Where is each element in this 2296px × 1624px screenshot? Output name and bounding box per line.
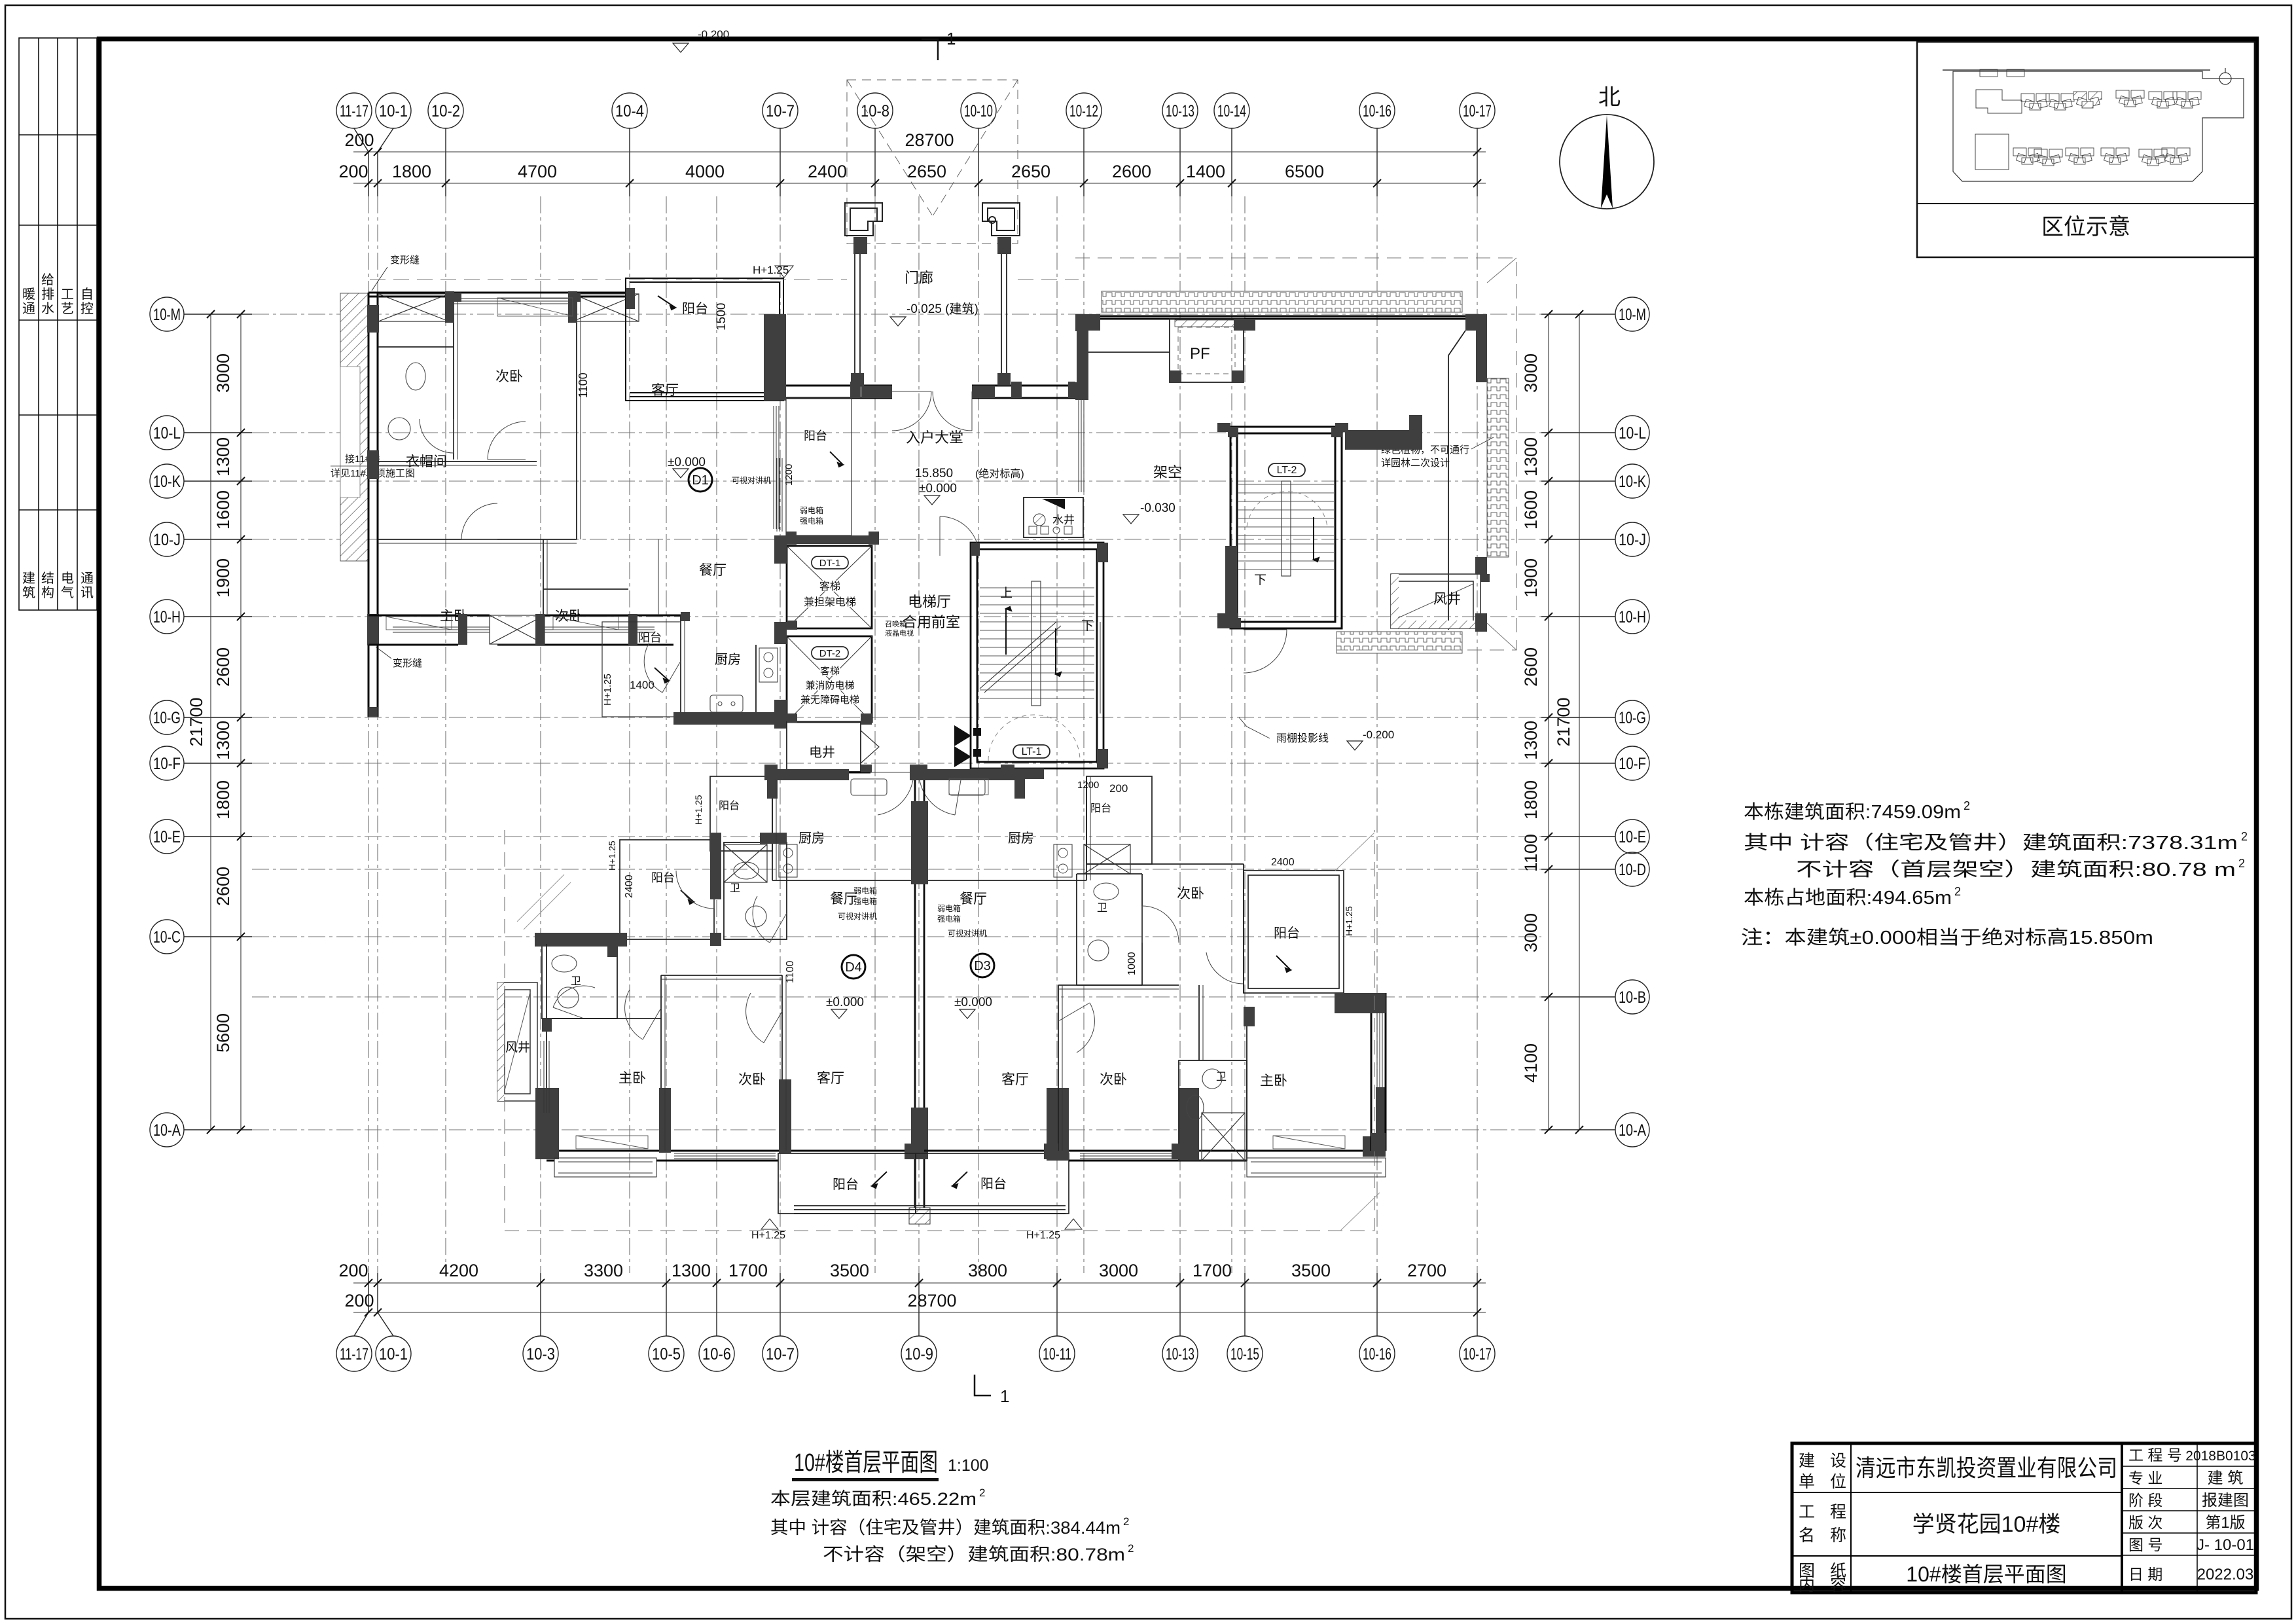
svg-text:自: 自 — [81, 287, 94, 302]
svg-text:衣帽间: 衣帽间 — [406, 454, 447, 469]
svg-text:餐厅: 餐厅 — [699, 563, 726, 578]
svg-text:1700: 1700 — [728, 1261, 768, 1280]
svg-text:1:100: 1:100 — [948, 1456, 989, 1475]
svg-text:2600: 2600 — [1521, 647, 1541, 687]
svg-text:兼无障碍电梯: 兼无障碍电梯 — [800, 694, 859, 706]
svg-text:10#楼首层平面图: 10#楼首层平面图 — [1906, 1562, 2066, 1586]
svg-text:2: 2 — [2238, 857, 2245, 870]
svg-text:10-2: 10-2 — [431, 102, 460, 120]
svg-text:1100: 1100 — [785, 960, 796, 983]
svg-text:3000: 3000 — [213, 353, 233, 393]
svg-text:餐厅: 餐厅 — [830, 892, 857, 907]
svg-text:雨棚投影线: 雨棚投影线 — [1276, 732, 1329, 744]
svg-text:1100: 1100 — [577, 372, 590, 398]
svg-text:DT-2: DT-2 — [819, 648, 841, 659]
svg-text:厨房: 厨房 — [798, 831, 825, 846]
svg-text:D1: D1 — [692, 473, 709, 488]
svg-text:1300: 1300 — [213, 721, 233, 760]
svg-text:北: 北 — [1598, 85, 1621, 110]
svg-text:可视对讲机: 可视对讲机 — [948, 928, 987, 938]
svg-text:H+1.25: H+1.25 — [751, 1230, 785, 1241]
svg-text:10-5: 10-5 — [652, 1345, 681, 1363]
svg-text:10-H: 10-H — [1619, 608, 1646, 626]
svg-text:10-6: 10-6 — [702, 1345, 731, 1363]
svg-text:阶 段: 阶 段 — [2128, 1492, 2162, 1509]
svg-text:H+1.25: H+1.25 — [1344, 906, 1354, 936]
svg-text:注：本建筑±0.000相当于绝对标高15.850m: 注：本建筑±0.000相当于绝对标高15.850m — [1741, 927, 2153, 948]
svg-text:程: 程 — [1830, 1503, 1846, 1521]
svg-text:合用前室: 合用前室 — [903, 614, 960, 630]
svg-text:2400: 2400 — [624, 875, 635, 898]
svg-text:次卧: 次卧 — [738, 1072, 766, 1087]
svg-text:兼消防电梯: 兼消防电梯 — [805, 680, 854, 691]
svg-text:主卧: 主卧 — [619, 1071, 646, 1086]
svg-text:(绝对标高): (绝对标高) — [975, 468, 1024, 480]
svg-text:弱电箱: 弱电箱 — [937, 903, 961, 913]
svg-text:H+1.25: H+1.25 — [1026, 1230, 1060, 1241]
svg-text:兼担架电梯: 兼担架电梯 — [804, 596, 856, 608]
svg-text:厨房: 厨房 — [1008, 831, 1034, 846]
svg-text:10-J: 10-J — [1619, 531, 1646, 549]
svg-text:10-12: 10-12 — [1069, 102, 1098, 120]
svg-text:1200: 1200 — [1077, 780, 1099, 791]
svg-text:3300: 3300 — [584, 1261, 623, 1280]
svg-text:2022.03: 2022.03 — [2197, 1566, 2254, 1583]
svg-text:其中 计容（住宅及管井）建筑面积:7378.31m: 其中 计容（住宅及管井）建筑面积:7378.31m — [1744, 832, 2238, 854]
svg-text:2400: 2400 — [1271, 857, 1295, 868]
svg-text:-0.200: -0.200 — [698, 28, 729, 41]
svg-text:阳台: 阳台 — [651, 871, 675, 884]
svg-text:阳台: 阳台 — [1090, 803, 1111, 814]
svg-text:阳台: 阳台 — [638, 631, 662, 644]
svg-text:10-K: 10-K — [153, 473, 181, 491]
svg-text:单: 单 — [1799, 1473, 1815, 1491]
svg-text:D4: D4 — [845, 960, 862, 975]
svg-text:厨房: 厨房 — [715, 652, 741, 667]
svg-text:10-15: 10-15 — [1230, 1345, 1259, 1363]
svg-text:3000: 3000 — [1099, 1261, 1138, 1280]
svg-text:2600: 2600 — [213, 647, 233, 687]
svg-text:阳台: 阳台 — [682, 301, 708, 316]
svg-text:10-14: 10-14 — [1217, 102, 1246, 120]
svg-text:1800: 1800 — [1521, 780, 1541, 820]
svg-text:工 程 号: 工 程 号 — [2128, 1447, 2182, 1464]
svg-text:±0.000: ±0.000 — [919, 482, 957, 496]
svg-text:次卧: 次卧 — [1100, 1072, 1127, 1087]
svg-text:10-F: 10-F — [1619, 755, 1646, 773]
svg-text:2: 2 — [1964, 799, 1970, 812]
svg-text:水: 水 — [41, 301, 54, 316]
svg-text:10-H: 10-H — [153, 608, 181, 626]
svg-text:1400: 1400 — [630, 679, 655, 691]
svg-text:门廊: 门廊 — [905, 270, 933, 286]
svg-text:1500: 1500 — [715, 303, 728, 331]
svg-text:1600: 1600 — [213, 490, 233, 530]
svg-text:LT-2: LT-2 — [1277, 465, 1297, 476]
svg-text:10-4: 10-4 — [615, 102, 644, 120]
svg-text:次卧: 次卧 — [495, 369, 523, 384]
svg-text:水井: 水井 — [1052, 514, 1075, 526]
svg-text:10-1: 10-1 — [379, 1345, 408, 1363]
svg-text:风井: 风井 — [1433, 592, 1461, 607]
svg-text:讯: 讯 — [81, 585, 94, 600]
svg-text:200: 200 — [344, 1291, 374, 1310]
svg-text:卫: 卫 — [1097, 903, 1107, 914]
svg-text:建 筑: 建 筑 — [2208, 1470, 2244, 1487]
svg-text:-0.025 (建筑): -0.025 (建筑) — [906, 302, 978, 316]
svg-text:1700: 1700 — [1193, 1261, 1232, 1280]
svg-text:4700: 4700 — [518, 162, 557, 181]
svg-text:3800: 3800 — [968, 1261, 1007, 1280]
svg-text:±0.000: ±0.000 — [668, 456, 706, 469]
svg-text:3500: 3500 — [1291, 1261, 1331, 1280]
svg-text:建: 建 — [22, 571, 35, 586]
svg-text:版 次: 版 次 — [2128, 1514, 2162, 1531]
svg-text:阳台: 阳台 — [833, 1177, 859, 1192]
svg-text:位: 位 — [1830, 1473, 1846, 1491]
svg-text:筑: 筑 — [22, 585, 35, 600]
svg-text:10-7: 10-7 — [766, 102, 795, 120]
svg-text:2600: 2600 — [1112, 162, 1151, 181]
svg-text:1300: 1300 — [213, 437, 233, 477]
svg-text:10-D: 10-D — [1619, 861, 1646, 879]
svg-text:1000: 1000 — [1126, 952, 1138, 975]
svg-text:建: 建 — [1799, 1452, 1815, 1470]
svg-text:10-E: 10-E — [1619, 828, 1646, 846]
svg-text:排: 排 — [41, 287, 54, 302]
svg-text:不计容（首层架空）建筑面积:80.78 m: 不计容（首层架空）建筑面积:80.78 m — [1796, 859, 2236, 880]
svg-text:气: 气 — [61, 585, 74, 600]
svg-text:200: 200 — [338, 162, 368, 181]
svg-text:3000: 3000 — [1521, 353, 1541, 393]
svg-text:给: 给 — [41, 272, 54, 287]
svg-text:卫: 卫 — [1216, 1072, 1227, 1083]
svg-text:10-L: 10-L — [1619, 424, 1646, 442]
svg-text:10-16: 10-16 — [1363, 102, 1391, 120]
svg-text:2: 2 — [979, 1487, 985, 1499]
svg-text:1600: 1600 — [1521, 490, 1541, 530]
svg-text:日 期: 日 期 — [2128, 1566, 2162, 1583]
svg-text:设: 设 — [1830, 1452, 1846, 1470]
svg-text:2: 2 — [1954, 885, 1961, 898]
svg-text:客梯: 客梯 — [820, 666, 840, 677]
svg-text:暖: 暖 — [22, 287, 35, 302]
svg-text:10-17: 10-17 — [1463, 102, 1492, 120]
svg-text:第1版: 第1版 — [2205, 1514, 2245, 1532]
svg-text:变形缝: 变形缝 — [393, 658, 422, 669]
svg-text:10-J: 10-J — [153, 531, 181, 549]
svg-text:H+1.25: H+1.25 — [693, 795, 704, 825]
svg-text:客厅: 客厅 — [651, 383, 679, 398]
svg-text:2: 2 — [1128, 1542, 1134, 1555]
svg-text:3500: 3500 — [830, 1261, 869, 1280]
svg-text:21700: 21700 — [1554, 697, 1573, 746]
svg-text:阳台: 阳台 — [804, 429, 827, 442]
svg-text:主卧: 主卧 — [1260, 1074, 1287, 1089]
svg-text:10-A: 10-A — [153, 1121, 181, 1140]
svg-text:10-L: 10-L — [153, 424, 181, 442]
svg-text:2600: 2600 — [213, 867, 233, 906]
svg-text:1200: 1200 — [783, 464, 795, 486]
svg-text:10-M: 10-M — [153, 306, 181, 324]
svg-text:3000: 3000 — [1521, 913, 1541, 952]
svg-text:10-3: 10-3 — [526, 1345, 555, 1363]
svg-text:200: 200 — [338, 1261, 368, 1280]
svg-text:电井: 电井 — [809, 745, 835, 760]
svg-text:1800: 1800 — [213, 780, 233, 820]
svg-text:称: 称 — [1830, 1526, 1846, 1545]
svg-text:10-K: 10-K — [1619, 473, 1646, 491]
svg-text:10-8: 10-8 — [861, 102, 889, 120]
svg-text:1100: 1100 — [1521, 834, 1541, 872]
svg-text:28700: 28700 — [907, 1291, 956, 1310]
svg-text:2: 2 — [2241, 830, 2248, 843]
svg-text:构: 构 — [41, 585, 54, 600]
svg-text:客厅: 客厅 — [1001, 1072, 1029, 1087]
svg-text:28700: 28700 — [905, 130, 954, 150]
svg-text:可视对讲机: 可视对讲机 — [732, 475, 771, 485]
svg-text:1300: 1300 — [672, 1261, 711, 1280]
svg-text:区位示意: 区位示意 — [2041, 215, 2130, 240]
svg-text:10-1: 10-1 — [379, 102, 408, 120]
svg-text:10-C: 10-C — [153, 928, 181, 947]
svg-text:本层建筑面积:465.22m: 本层建筑面积:465.22m — [770, 1489, 977, 1509]
svg-text:10-E: 10-E — [153, 828, 181, 846]
svg-text:10-17: 10-17 — [1463, 1345, 1492, 1363]
svg-text:10-13: 10-13 — [1166, 1345, 1194, 1363]
svg-text:电: 电 — [61, 571, 74, 586]
svg-text:10-M: 10-M — [1619, 306, 1646, 324]
svg-text:LT-1: LT-1 — [1022, 746, 1042, 757]
svg-text:客厅: 客厅 — [817, 1071, 844, 1086]
svg-text:架空: 架空 — [1153, 464, 1182, 480]
svg-text:1800: 1800 — [392, 162, 431, 181]
svg-text:±0.000: ±0.000 — [954, 996, 992, 1009]
svg-text:15.850: 15.850 — [915, 467, 953, 480]
svg-text:变形缝: 变形缝 — [390, 255, 420, 266]
svg-text:强电箱: 强电箱 — [800, 516, 823, 526]
svg-text:4200: 4200 — [439, 1261, 478, 1280]
svg-text:图 号: 图 号 — [2128, 1536, 2162, 1553]
svg-text:10-G: 10-G — [1619, 709, 1646, 727]
svg-text:结: 结 — [41, 571, 54, 586]
svg-text:入户大堂: 入户大堂 — [906, 429, 963, 446]
svg-text:10-G: 10-G — [153, 709, 181, 727]
svg-text:PF: PF — [1190, 345, 1210, 363]
svg-text:2700: 2700 — [1407, 1261, 1446, 1280]
svg-text:1300: 1300 — [1521, 721, 1541, 760]
svg-text:10-13: 10-13 — [1166, 102, 1194, 120]
svg-text:4100: 4100 — [1521, 1043, 1541, 1083]
svg-text:上: 上 — [1000, 586, 1013, 600]
svg-text:2018B0103: 2018B0103 — [2185, 1449, 2255, 1464]
svg-text:召唤箱: 召唤箱 — [885, 619, 906, 628]
svg-text:卫: 卫 — [730, 883, 740, 894]
svg-text:餐厅: 餐厅 — [960, 892, 987, 907]
svg-text:容: 容 — [1830, 1576, 1846, 1595]
svg-text:下: 下 — [1081, 619, 1094, 633]
svg-text:10-F: 10-F — [153, 755, 181, 773]
svg-text:11-17: 11-17 — [340, 102, 368, 120]
svg-text:2: 2 — [1123, 1515, 1129, 1528]
svg-text:10-16: 10-16 — [1363, 1345, 1391, 1363]
svg-text:工: 工 — [1799, 1503, 1815, 1521]
svg-text:清远市东凯投资置业有限公司: 清远市东凯投资置业有限公司 — [1856, 1454, 2117, 1481]
svg-text:阳台: 阳台 — [719, 800, 740, 812]
svg-text:不计容（架空）建筑面积:80.78m: 不计容（架空）建筑面积:80.78m — [823, 1545, 1125, 1564]
svg-text:风井: 风井 — [505, 1040, 530, 1055]
svg-text:±0.000: ±0.000 — [826, 996, 864, 1009]
svg-text:4000: 4000 — [685, 162, 725, 181]
svg-text:10-9: 10-9 — [905, 1345, 933, 1363]
svg-text:H+1.25: H+1.25 — [607, 840, 617, 871]
svg-text:详园林二次设计: 详园林二次设计 — [1381, 458, 1450, 469]
svg-text:学贤花园10#楼: 学贤花园10#楼 — [1912, 1512, 2061, 1537]
svg-text:下: 下 — [1254, 573, 1266, 587]
svg-text:1300: 1300 — [1521, 437, 1541, 477]
svg-text:-0.030: -0.030 — [1140, 501, 1175, 515]
svg-text:1: 1 — [946, 29, 956, 48]
svg-text:本栋建筑面积:7459.09m: 本栋建筑面积:7459.09m — [1744, 801, 1961, 823]
svg-text:11-17: 11-17 — [340, 1345, 368, 1363]
svg-text:液晶电视: 液晶电视 — [885, 628, 914, 638]
svg-text:控: 控 — [81, 301, 94, 316]
svg-text:1900: 1900 — [1521, 558, 1541, 598]
svg-text:本栋占地面积:494.65m: 本栋占地面积:494.65m — [1744, 887, 1952, 909]
svg-text:2650: 2650 — [907, 162, 946, 181]
svg-text:200: 200 — [344, 130, 374, 150]
svg-text:可视对讲机: 可视对讲机 — [838, 911, 877, 921]
svg-text:D3: D3 — [974, 959, 991, 973]
svg-text:客梯: 客梯 — [819, 581, 840, 592]
svg-text:卫: 卫 — [571, 976, 581, 987]
svg-text:10#楼首层平面图: 10#楼首层平面图 — [794, 1449, 938, 1477]
svg-text:阳台: 阳台 — [980, 1176, 1007, 1191]
svg-text:报建图: 报建图 — [2202, 1492, 2249, 1509]
svg-text:工: 工 — [61, 287, 74, 302]
svg-text:J- 10-01: J- 10-01 — [2197, 1536, 2254, 1554]
svg-text:名: 名 — [1799, 1526, 1815, 1545]
svg-text:专 业: 专 业 — [2128, 1470, 2162, 1487]
svg-text:1: 1 — [1000, 1386, 1009, 1406]
svg-text:通: 通 — [81, 571, 94, 586]
svg-text:强电箱: 强电箱 — [937, 914, 961, 924]
svg-text:10-A: 10-A — [1619, 1121, 1646, 1140]
svg-text:H+1.25: H+1.25 — [602, 674, 613, 706]
svg-text:2650: 2650 — [1011, 162, 1050, 181]
svg-text:2400: 2400 — [808, 162, 847, 181]
svg-text:电梯厅: 电梯厅 — [908, 594, 951, 610]
svg-text:10-B: 10-B — [1619, 988, 1646, 1007]
svg-text:阳台: 阳台 — [1274, 926, 1300, 941]
svg-text:200: 200 — [1109, 782, 1128, 795]
svg-text:5600: 5600 — [213, 1013, 233, 1053]
svg-text:通: 通 — [22, 301, 35, 316]
svg-text:弱电箱: 弱电箱 — [800, 505, 823, 515]
svg-text:10-11: 10-11 — [1043, 1345, 1071, 1363]
svg-text:艺: 艺 — [61, 301, 74, 316]
svg-text:次卧: 次卧 — [1177, 886, 1204, 901]
svg-text:21700: 21700 — [187, 697, 206, 746]
svg-text:6500: 6500 — [1285, 162, 1324, 181]
svg-text:-0.200: -0.200 — [1363, 729, 1394, 741]
svg-text:DT-1: DT-1 — [819, 558, 841, 569]
svg-text:其中 计容（住宅及管井）建筑面积:384.44m: 其中 计容（住宅及管井）建筑面积:384.44m — [770, 1518, 1121, 1538]
svg-text:内: 内 — [1799, 1576, 1815, 1595]
svg-text:10-7: 10-7 — [766, 1345, 795, 1363]
svg-text:1400: 1400 — [1186, 162, 1225, 181]
svg-text:10-10: 10-10 — [964, 102, 993, 120]
svg-text:1900: 1900 — [213, 558, 233, 598]
